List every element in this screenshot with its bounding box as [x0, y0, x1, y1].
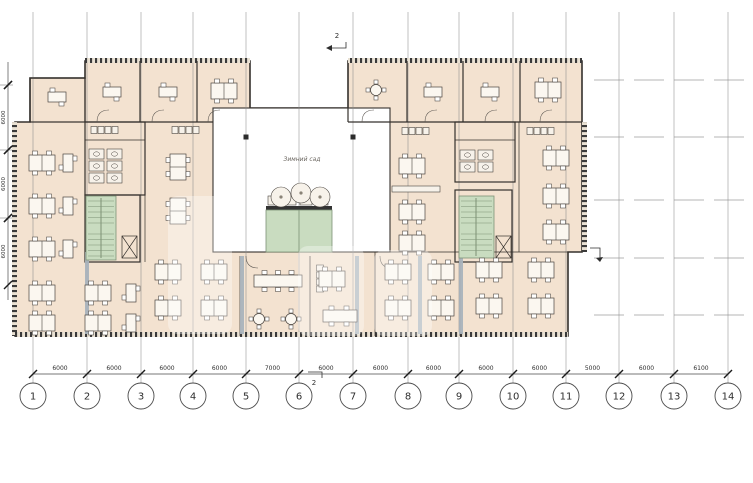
section-marker-bottom-label: 2: [312, 379, 316, 387]
dim-span-label: 6000: [52, 365, 67, 372]
column-bubble-label: 4: [190, 392, 196, 403]
dim-span-label: 6000: [318, 365, 333, 372]
column-bubble-label: 10: [507, 392, 520, 403]
floor-plan-drawing: 2 2 Зимний сад 600060006000 600060006000…: [0, 0, 753, 483]
section-marker-top: 2: [326, 32, 346, 51]
column-bubble-label: 2: [84, 392, 90, 403]
courtyard-label: Зимний сад: [283, 156, 320, 163]
curtain-wall-right: [582, 122, 587, 252]
dim-span-label: 7000: [265, 365, 280, 372]
dim-span-label: 6000: [159, 365, 174, 372]
column-bubble-label: 14: [722, 392, 735, 403]
curtain-wall-bottom: [15, 332, 568, 337]
winter-garden: [266, 183, 332, 252]
column-marker: [244, 135, 249, 140]
section-marker-top-label: 2: [335, 32, 339, 40]
left-dimension-line: 600060006000: [1, 62, 12, 300]
column-marker: [351, 135, 356, 140]
floor-plan-page: 2 2 Зимний сад 600060006000 600060006000…: [0, 0, 753, 483]
left-dim-label: 6000: [1, 110, 7, 124]
column-bubble-label: 5: [243, 392, 249, 403]
reception-counter: [392, 186, 440, 192]
dim-span-label: 6000: [212, 365, 227, 372]
column-bubble-label: 8: [405, 392, 411, 403]
dim-span-label: 6000: [532, 365, 547, 372]
column-bubble-label: 3: [138, 392, 144, 403]
column-bubble-label: 7: [350, 392, 356, 403]
dim-span-label: 5000: [585, 365, 600, 372]
column-bubble-label: 6: [296, 392, 302, 403]
curtain-wall-left: [12, 122, 17, 336]
column-bubble-label: 11: [560, 392, 573, 403]
column-bubbles: 1234567891011121314: [20, 383, 741, 409]
dim-span-label: 6000: [639, 365, 654, 372]
column-bubble-label: 1: [30, 392, 36, 403]
dim-span-label: 6000: [426, 365, 441, 372]
left-dim-label: 6000: [1, 177, 7, 191]
curtain-wall-top-left-wing: [85, 58, 250, 63]
dim-span-label: 6000: [373, 365, 388, 372]
dim-span-label: 6100: [693, 365, 708, 372]
dim-span-label: 6000: [478, 365, 493, 372]
curtain-wall-top-right-wing: [348, 58, 582, 63]
column-bubble-label: 9: [456, 392, 462, 403]
left-dim-label: 6000: [1, 244, 7, 258]
exit-arrow: [590, 248, 603, 262]
bottom-dimension-line: 6000600060006000700060006000600060006000…: [29, 365, 732, 378]
dim-span-label: 6000: [106, 365, 121, 372]
column-bubble-label: 13: [668, 392, 681, 403]
column-bubble-label: 12: [613, 392, 626, 403]
